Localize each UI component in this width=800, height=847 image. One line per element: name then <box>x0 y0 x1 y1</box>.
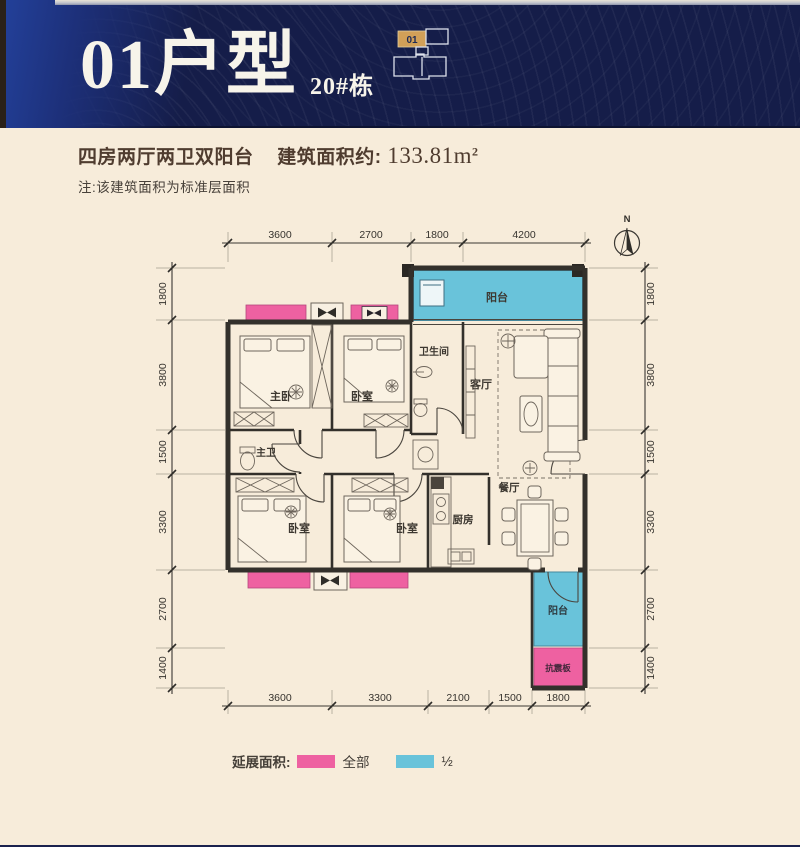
dim-label: 2700 <box>359 229 383 241</box>
plant-icon <box>386 380 398 392</box>
chaise <box>514 336 548 378</box>
toilet-icon <box>414 404 427 417</box>
master-bedroom-furniture: 主卧 <box>234 336 310 426</box>
wardrobe <box>352 478 408 492</box>
legend-full-label: 全部 <box>343 751 370 771</box>
master-bath-fixtures: 主卫 <box>240 446 276 470</box>
plan-headline: 四房两厅两卫双阳台 建筑面积约: 133.81m2 <box>78 142 479 169</box>
bedroom-top-furniture: 卧室 <box>344 336 408 427</box>
dim-label: 1800 <box>546 692 570 704</box>
legend-half-label: ½ <box>442 754 453 769</box>
layout-description: 四房两厅两卫双阳台 <box>78 147 254 168</box>
room-label-master: 主卧 <box>270 389 292 403</box>
legend-swatch-pink <box>297 755 335 768</box>
room-label-bedroom-left: 卧室 <box>288 521 310 535</box>
dim-label: 1400 <box>157 656 169 680</box>
dining-room-furniture: 餐厅 <box>498 481 569 570</box>
bathroom-door <box>437 408 463 434</box>
room-label-balcony-top: 阳台 <box>486 290 508 304</box>
room-label-bedroom-top: 卧室 <box>351 389 373 403</box>
stove-icon <box>433 494 449 524</box>
dim-label: 3800 <box>157 363 169 387</box>
bedroom-door <box>376 430 404 458</box>
chair <box>528 486 541 498</box>
chair <box>555 508 568 521</box>
room-label-bathroom: 卫生间 <box>419 345 449 358</box>
bedroom-left-furniture: 卧室 <box>236 478 310 562</box>
bedroom-mid-furniture: 卧室 <box>344 478 418 562</box>
plan-summary: 四房两厅两卫双阳台 建筑面积约: 133.81m2 注:该建筑面积为标准层面积 <box>78 142 479 196</box>
duct-shaft <box>312 325 332 408</box>
legend-swatch-blue <box>396 755 434 768</box>
coffee-table <box>520 396 542 432</box>
wardrobe <box>234 412 274 426</box>
kitchen-appliance <box>431 477 444 489</box>
dim-label: 1400 <box>645 656 657 680</box>
wardrobe <box>236 478 294 492</box>
washbasin-icon <box>418 447 433 462</box>
area-label: 建筑面积约: <box>277 147 381 168</box>
floorplan: 3600 2700 1800 4200 3600 3300 2100 1500 … <box>130 210 750 770</box>
header-banner: 01户型 20#栋 01 <box>0 0 800 128</box>
room-label-dining: 餐厅 <box>498 481 520 494</box>
page: 01户型 20#栋 01 四房两厅两卫双阳台 建筑面积约: 133.81m2 注… <box>0 0 800 847</box>
chair <box>528 558 541 570</box>
seismic-board: 抗震板 <box>534 648 584 686</box>
plant-icon <box>285 506 297 518</box>
area-note: 注:该建筑面积为标准层面积 <box>78 176 479 196</box>
building-number: 20#栋 <box>310 66 374 101</box>
dim-label: 3300 <box>368 692 392 704</box>
balcony-top: 阳台 <box>402 264 584 321</box>
room-label-seismic: 抗震板 <box>545 663 571 673</box>
dim-label: 3800 <box>645 363 657 387</box>
kitchen-fixtures: 厨房 <box>431 477 474 567</box>
dim-label: 2700 <box>645 597 657 621</box>
dim-label: 1500 <box>645 440 657 464</box>
master-bedroom-door <box>294 430 322 458</box>
dim-label: 3300 <box>157 510 169 534</box>
dim-label: 3600 <box>268 692 292 704</box>
plant-icon <box>384 508 396 520</box>
area-value: 133.81m <box>387 143 472 168</box>
dim-label: 4200 <box>512 229 536 241</box>
dim-label: 1800 <box>425 229 449 241</box>
sofa <box>548 336 578 454</box>
north-arrow-icon: N <box>615 214 640 256</box>
legend-title: 延展面积: <box>232 751 291 771</box>
wardrobe <box>364 414 408 427</box>
room-label-living: 客厅 <box>469 377 492 391</box>
vanity-counter <box>413 440 438 469</box>
keyplan-icon: 01 <box>388 26 452 84</box>
dim-label: 3300 <box>645 510 657 534</box>
north-label: N <box>624 214 631 225</box>
dim-label: 1800 <box>157 282 169 306</box>
chair <box>502 532 515 545</box>
room-label-master-bath: 主卫 <box>256 446 276 459</box>
chair <box>502 508 515 521</box>
bay-window-pink <box>350 572 408 588</box>
dim-label: 2700 <box>157 597 169 621</box>
washing-machine-icon <box>420 280 444 306</box>
extension-area-legend: 延展面积: 全部 ½ <box>232 751 453 771</box>
kitchen-sink-icon <box>448 549 474 564</box>
plant-icon <box>501 334 515 348</box>
bay-window-pink <box>248 572 310 588</box>
master-bath-door <box>272 444 300 472</box>
bay-window-pink <box>246 305 306 321</box>
keyplan-unit-label: 01 <box>406 35 418 46</box>
room-label-balcony-bottom: 阳台 <box>548 604 568 617</box>
dim-label: 3600 <box>268 229 292 241</box>
dining-table <box>517 500 553 556</box>
bathroom-fixtures: 卫生间 <box>413 345 449 469</box>
chair <box>555 532 568 545</box>
unit-type-title: 01户型 <box>80 18 298 114</box>
page-edge-shadow <box>0 0 6 128</box>
balcony-bottom: 阳台 <box>534 572 584 646</box>
dim-label: 1500 <box>157 440 169 464</box>
header-top-strip <box>55 0 800 5</box>
area-exponent: 2 <box>472 145 479 159</box>
dim-label: 1800 <box>645 282 657 306</box>
room-label-bedroom-mid: 卧室 <box>396 521 418 535</box>
unit-title: 01户型 20#栋 <box>80 18 374 114</box>
dim-label: 1500 <box>498 692 522 704</box>
dim-label: 2100 <box>446 692 470 704</box>
living-room-furniture: 客厅 <box>466 329 580 478</box>
room-label-kitchen: 厨房 <box>453 513 474 526</box>
